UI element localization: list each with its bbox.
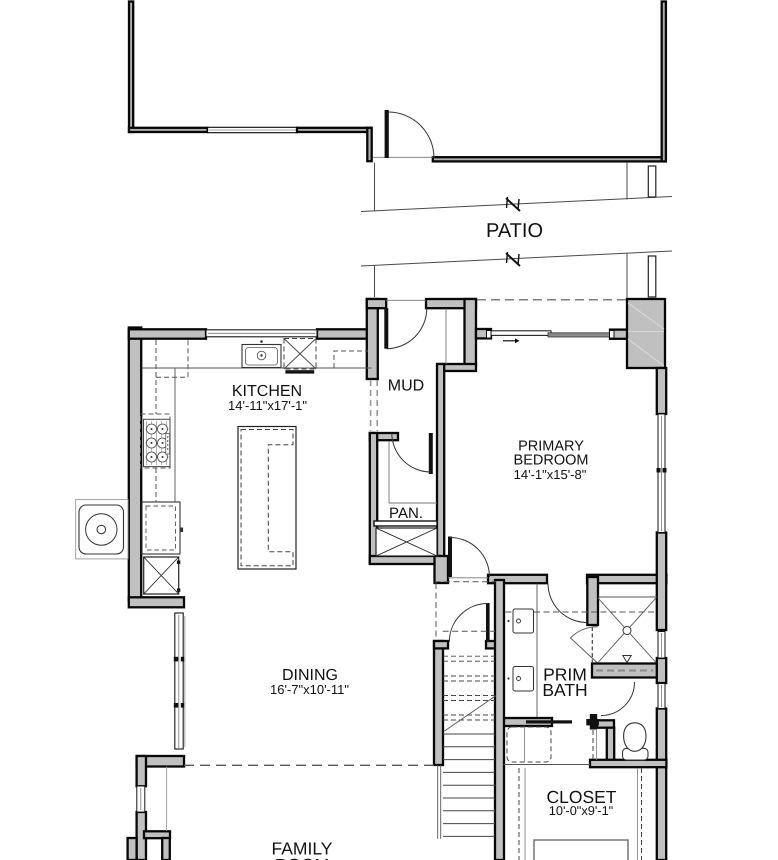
svg-text:PATIO: PATIO xyxy=(486,220,543,242)
svg-text:14'-11"x17'-1": 14'-11"x17'-1" xyxy=(228,398,307,413)
svg-text:MUD: MUD xyxy=(388,378,424,395)
svg-text:BATH: BATH xyxy=(542,680,587,700)
svg-text:10'-0"x9'-1": 10'-0"x9'-1" xyxy=(549,803,613,818)
svg-text:PAN.: PAN. xyxy=(389,505,423,522)
svg-text:16'-7"x10'-11": 16'-7"x10'-11" xyxy=(270,682,349,697)
svg-text:ROOM: ROOM xyxy=(275,855,329,860)
svg-text:14'-1"x15'-8": 14'-1"x15'-8" xyxy=(514,467,587,482)
